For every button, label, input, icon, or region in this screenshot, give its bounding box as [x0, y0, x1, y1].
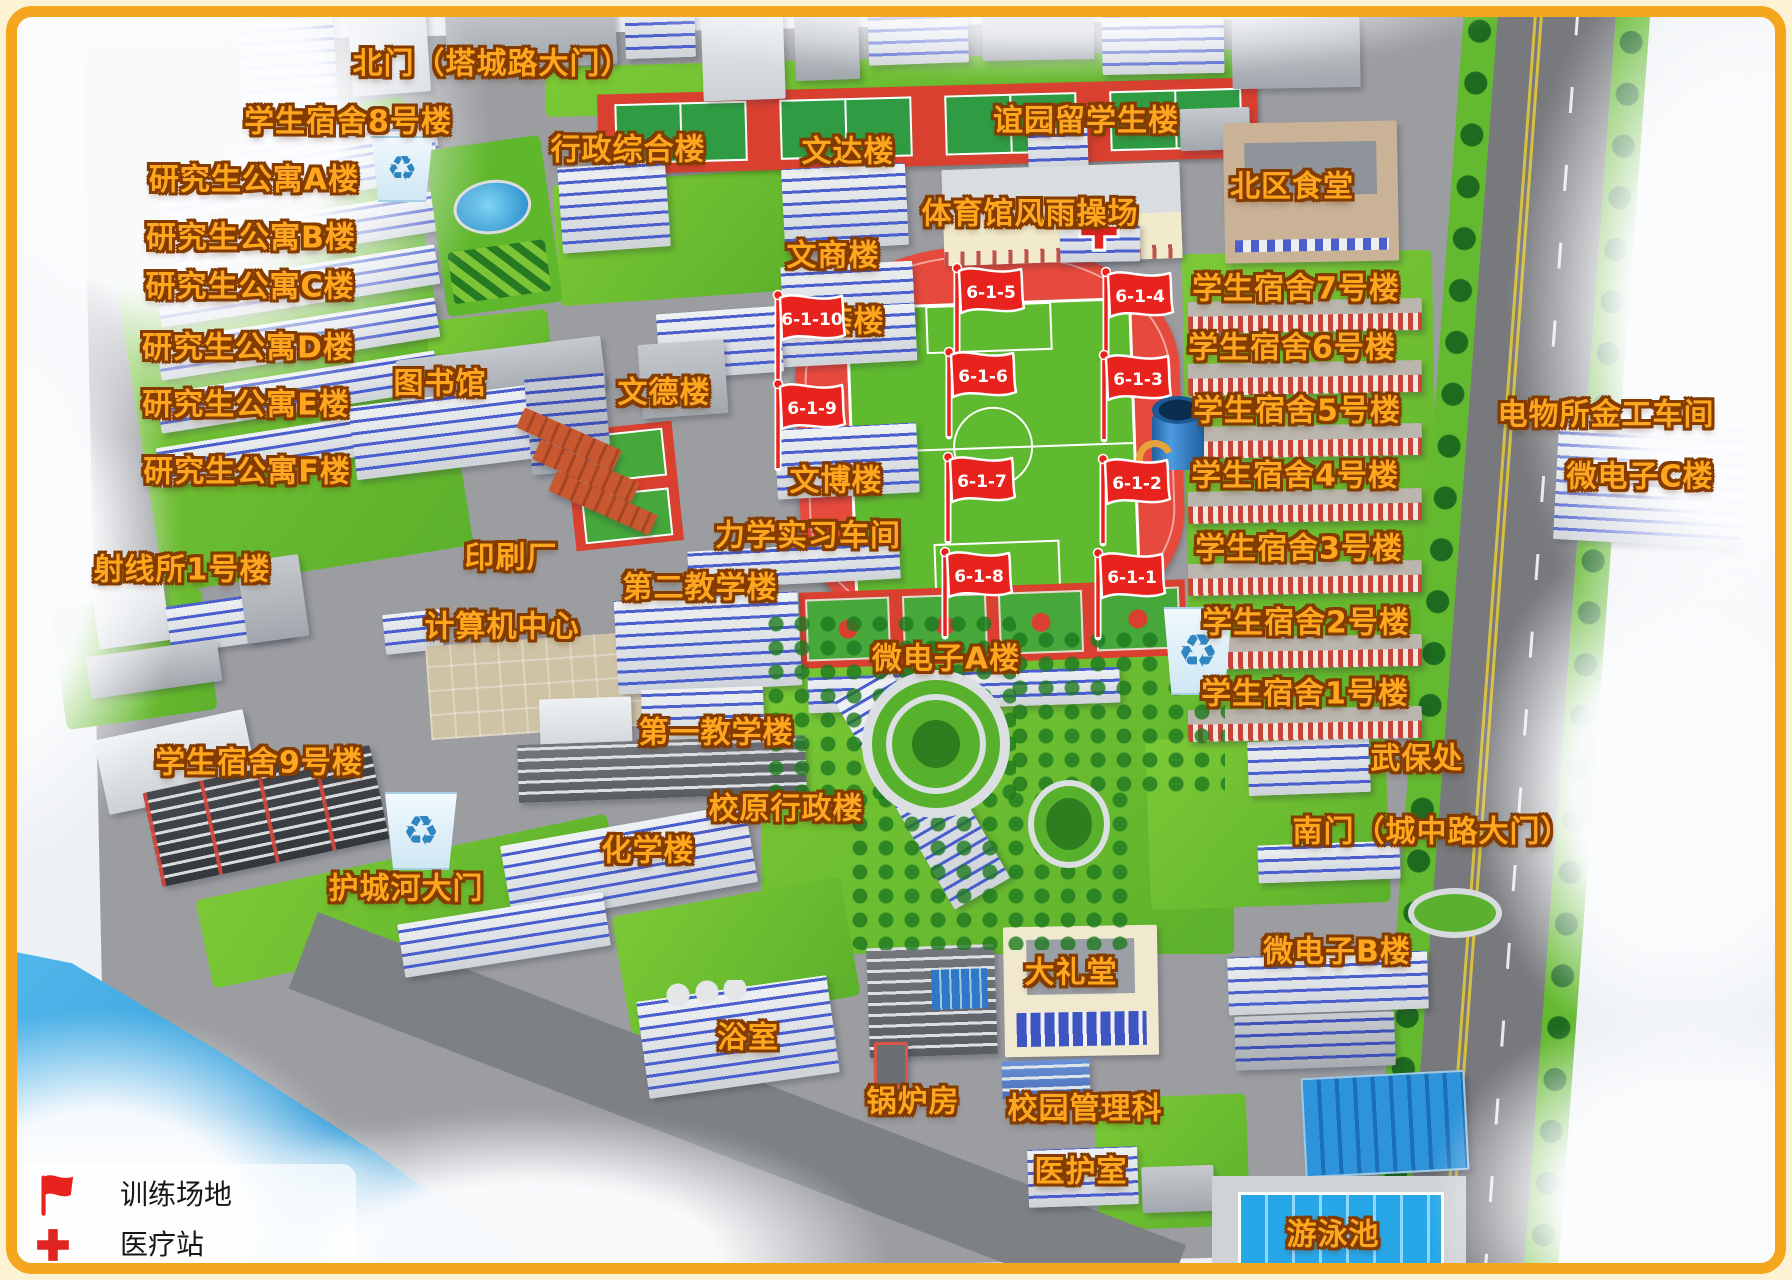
map-label-wenda-building: 文达楼 [802, 136, 895, 168]
map-label-grand-hall: 大礼堂 [1025, 957, 1118, 989]
training-flag-6-1-8: 6-1-8 [937, 546, 1017, 644]
training-flag-6-1-10: 6-1-10 [770, 289, 850, 387]
map-label-north-gate: 北门（塔城路大门） [353, 48, 632, 80]
map-label-bath-house: 浴室 [717, 1022, 779, 1054]
map-label-campus-management: 校园管理科 [1008, 1093, 1163, 1125]
training-flag-6-1-3: 6-1-3 [1096, 349, 1176, 447]
map-frame: ♻♻♻ 北门（塔城路大门）学生宿舍8号楼行政综合楼文达楼谊园留学生楼北区食堂研究… [6, 6, 1786, 1274]
training-flag-6-1-9: 6-1-9 [770, 378, 850, 476]
map-label-chemistry-building: 化学楼 [602, 835, 695, 867]
map-label-wende-building: 文德楼 [618, 377, 711, 409]
map-label-dorm-9: 学生宿舍9号楼 [155, 747, 363, 779]
red-flag-icon [34, 1172, 92, 1218]
map-label-radiology-1: 射线所1号楼 [94, 554, 271, 586]
map-label-old-admin: 校原行政楼 [709, 793, 864, 825]
ring-garden [862, 670, 1010, 818]
map-label-moat-gate: 护城河大门 [329, 873, 484, 905]
map-label-dianwusuo-workshop: 电物所金工车间 [1498, 399, 1715, 431]
map-label-dorm-4: 学生宿舍4号楼 [1191, 460, 1399, 492]
map-label-dorm-7: 学生宿舍7号楼 [1192, 273, 1400, 305]
map-label-clinic: 医护室 [1035, 1156, 1128, 1188]
recycle-bin-icon: ♻ [380, 792, 462, 870]
map-label-dorm-1: 学生宿舍1号楼 [1201, 678, 1409, 710]
map-label-yiyuan-intl-dorm: 谊园留学生楼 [993, 105, 1179, 137]
legend-label-training: 训练场地 [120, 1181, 232, 1209]
map-label-micro-b: 微电子B楼 [1263, 936, 1411, 968]
map-label-dorm-8: 学生宿舍8号楼 [244, 106, 452, 138]
svg-text:6-1-1: 6-1-1 [1107, 568, 1157, 588]
svg-text:6-1-5: 6-1-5 [966, 283, 1016, 303]
map-label-micro-c: 微电子C楼 [1566, 461, 1713, 493]
map-label-wenshang-building: 文商楼 [787, 240, 880, 272]
map-label-teaching-2: 第二教学楼 [623, 572, 778, 604]
svg-text:6-1-7: 6-1-7 [957, 472, 1007, 492]
map-label-north-canteen: 北区食堂 [1230, 171, 1354, 203]
training-flag-6-1-1: 6-1-1 [1090, 547, 1170, 645]
svg-text:6-1-4: 6-1-4 [1115, 287, 1165, 307]
svg-text:6-1-3: 6-1-3 [1113, 370, 1163, 390]
map-label-gym-sports-hall: 体育馆风雨操场 [922, 198, 1139, 230]
map-label-grad-apartment-b: 研究生公寓B楼 [146, 222, 356, 254]
map-label-grad-apartment-e: 研究生公寓E楼 [142, 389, 350, 421]
legend-label-medical: 医疗站 [120, 1231, 204, 1259]
map-label-dorm-5: 学生宿舍5号楼 [1193, 395, 1401, 427]
svg-text:6-1-2: 6-1-2 [1112, 474, 1162, 494]
map-label-grad-apartment-d: 研究生公寓D楼 [142, 332, 354, 364]
map-label-teaching-1: 第一教学楼 [639, 717, 794, 749]
legend-panel: 训练场地 医疗站 [14, 1164, 356, 1272]
map-label-grad-apartment-a: 研究生公寓A楼 [149, 164, 359, 196]
map-label-security-office: 武保处 [1371, 743, 1464, 775]
training-flag-6-1-6: 6-1-6 [941, 346, 1021, 444]
map-label-boiler-room: 锅炉房 [867, 1086, 960, 1118]
map-label-micro-a: 微电子A楼 [872, 643, 1020, 675]
legend-item-medical: 医疗站 [14, 1226, 356, 1264]
map-label-dorm-2: 学生宿舍2号楼 [1202, 607, 1410, 639]
map-label-swimming-pool: 游泳池 [1287, 1219, 1380, 1251]
map-label-mechanics-workshop: 力学实习车间 [715, 520, 901, 552]
map-label-computer-center: 计算机中心 [425, 611, 580, 643]
map-label-dorm-3: 学生宿舍3号楼 [1195, 533, 1403, 565]
screenshot: ♻♻♻ 北门（塔城路大门）学生宿舍8号楼行政综合楼文达楼谊园留学生楼北区食堂研究… [0, 0, 1792, 1280]
map-label-grad-apartment-f: 研究生公寓F楼 [143, 456, 351, 488]
svg-text:6-1-9: 6-1-9 [787, 399, 837, 419]
svg-text:6-1-10: 6-1-10 [781, 310, 843, 330]
campus-map: ♻♻♻ 北门（塔城路大门）学生宿舍8号楼行政综合楼文达楼谊园留学生楼北区食堂研究… [6, 6, 1786, 1274]
map-label-library: 图书馆 [394, 368, 487, 400]
map-label-grad-apartment-c: 研究生公寓C楼 [145, 271, 354, 303]
training-flag-6-1-2: 6-1-2 [1095, 453, 1175, 551]
red-cross-icon [34, 1226, 92, 1264]
legend-item-training: 训练场地 [14, 1172, 356, 1218]
svg-text:6-1-6: 6-1-6 [958, 367, 1008, 387]
map-label-south-gate: 南门（城中路大门） [1293, 816, 1572, 848]
map-label-print-factory: 印刷厂 [465, 542, 558, 574]
recycle-bin-icon: ♻ [367, 136, 437, 202]
map-label-dorm-6: 学生宿舍6号楼 [1188, 332, 1396, 364]
map-label-admin-complex: 行政综合楼 [551, 134, 706, 166]
training-flag-6-1-7: 6-1-7 [940, 451, 1020, 549]
svg-text:6-1-8: 6-1-8 [954, 567, 1004, 587]
